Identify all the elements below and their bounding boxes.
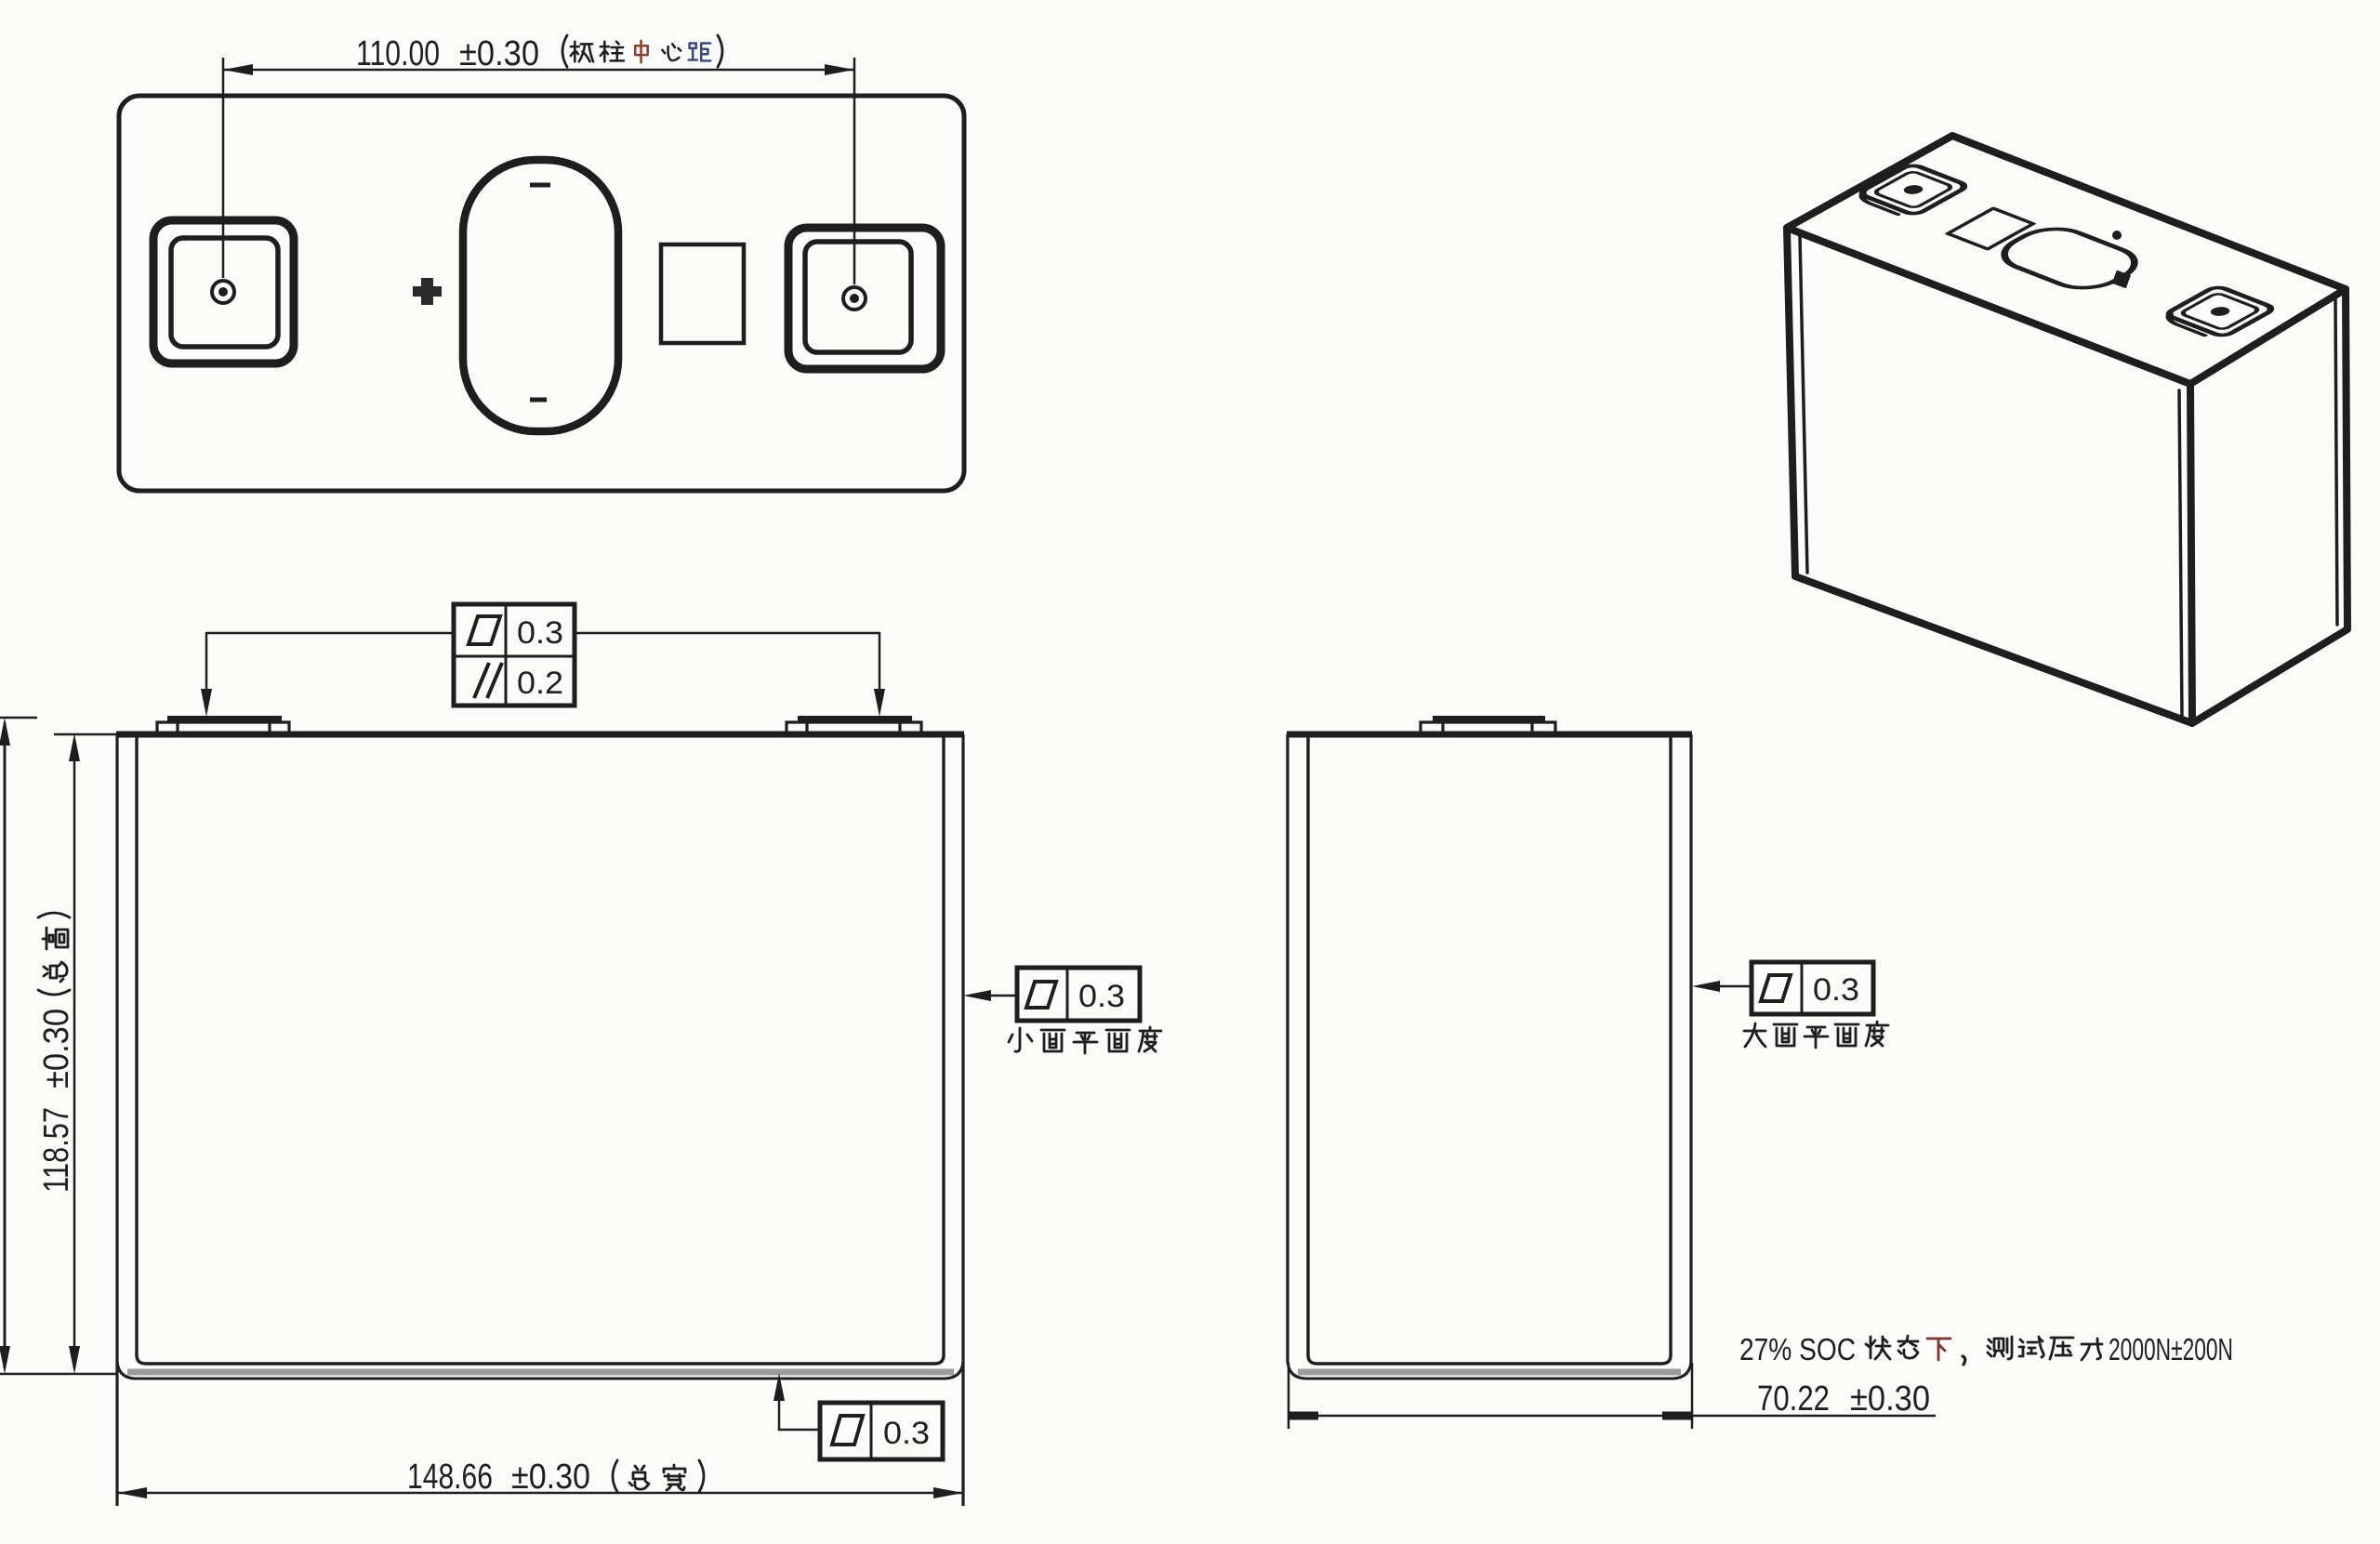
svg-text:0.3: 0.3: [1078, 979, 1125, 1014]
svg-text:±0.30: ±0.30: [37, 1009, 76, 1089]
svg-text:0.2: 0.2: [517, 666, 563, 701]
svg-text:±0.30: ±0.30: [459, 34, 539, 73]
svg-text:±0.30: ±0.30: [1850, 1379, 1930, 1419]
svg-text:110.00: 110.00: [356, 34, 440, 73]
svg-text:148.66: 148.66: [407, 1458, 493, 1497]
svg-text:118.57: 118.57: [37, 1107, 76, 1193]
svg-text:±0.30: ±0.30: [511, 1458, 590, 1497]
svg-text:2000N±200N: 2000N±200N: [2109, 1332, 2233, 1366]
svg-text:70.22: 70.22: [1757, 1379, 1830, 1419]
svg-text:0.3: 0.3: [517, 615, 563, 651]
svg-text:27% SOC: 27% SOC: [1739, 1332, 1856, 1366]
svg-text:0.3: 0.3: [1813, 972, 1859, 1008]
svg-text:0.3: 0.3: [883, 1416, 930, 1451]
